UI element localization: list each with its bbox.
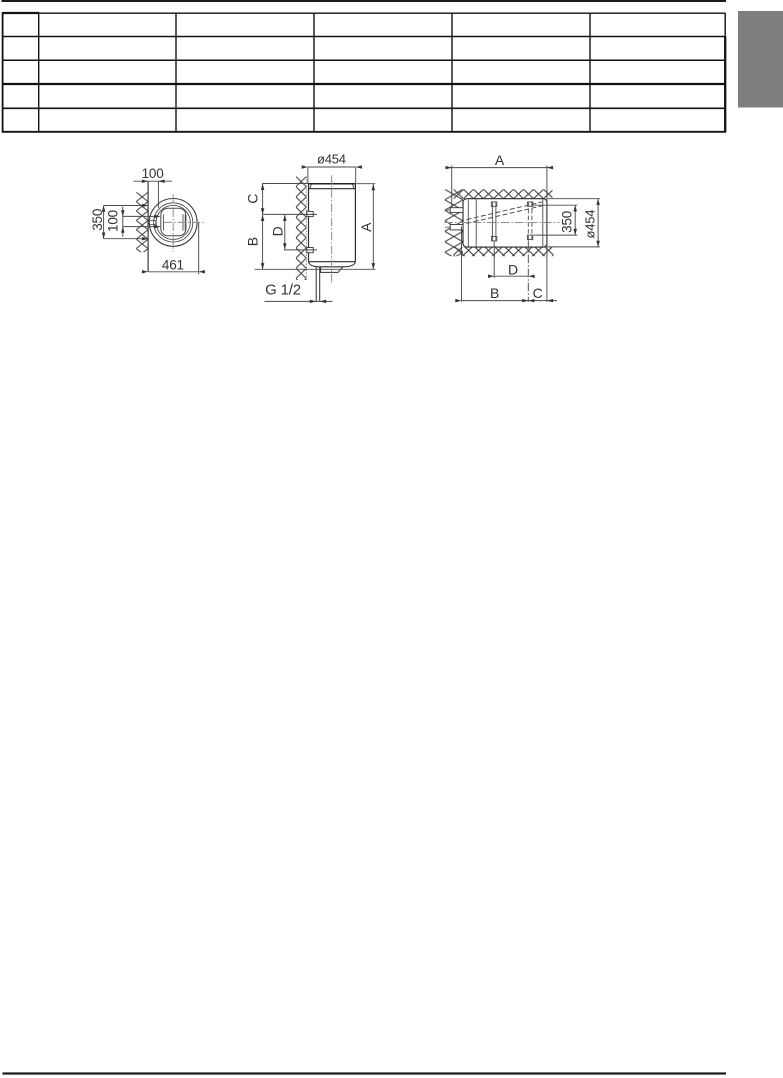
svg-text:C: C (533, 285, 543, 301)
svg-text:100: 100 (142, 166, 164, 181)
svg-text:A: A (358, 222, 374, 232)
svg-text:D: D (508, 261, 518, 277)
svg-text:461: 461 (162, 257, 184, 272)
svg-text:B: B (490, 285, 499, 301)
svg-text:ø454: ø454 (583, 210, 598, 239)
svg-text:ø454: ø454 (317, 152, 346, 167)
svg-text:G 1/2: G 1/2 (265, 281, 301, 298)
svg-text:100: 100 (105, 210, 120, 232)
svg-text:350: 350 (560, 211, 575, 233)
svg-text:350: 350 (90, 209, 105, 231)
svg-text:D: D (269, 226, 285, 236)
svg-text:A: A (495, 152, 505, 168)
svg-text:B: B (244, 237, 260, 246)
svg-text:C: C (245, 194, 261, 204)
